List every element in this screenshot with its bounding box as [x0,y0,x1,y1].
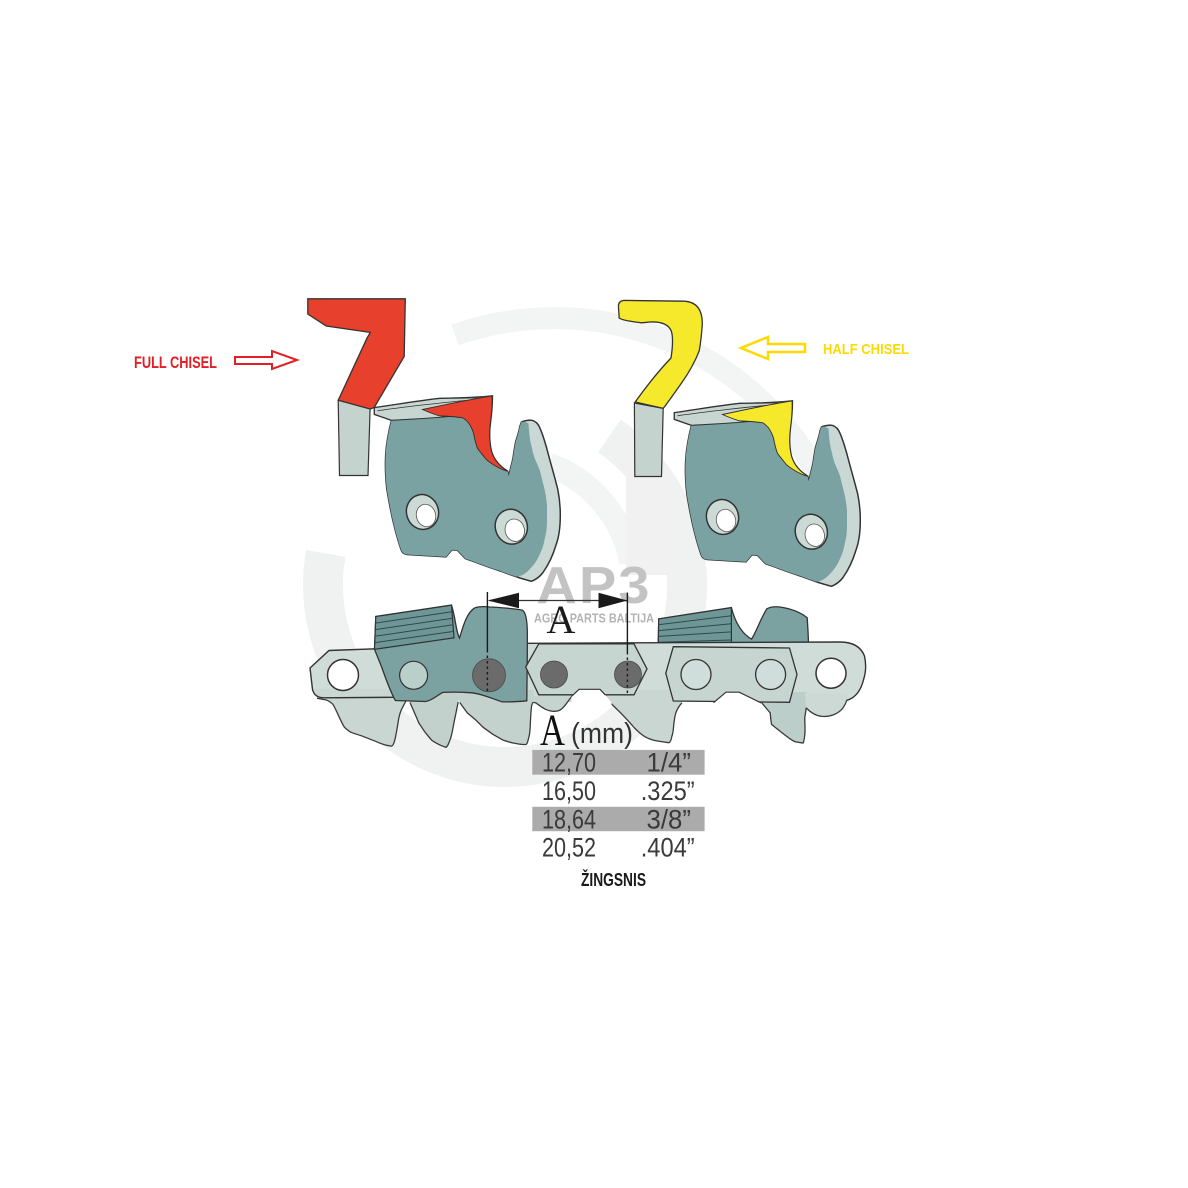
svg-text:.325”: .325” [641,776,695,806]
svg-text:12,70: 12,70 [542,748,596,778]
svg-text:1/4”: 1/4” [647,748,692,778]
svg-text:.404”: .404” [641,833,695,863]
svg-text:ŽINGSNIS: ŽINGSNIS [581,869,646,890]
svg-text:(mm): (mm) [571,718,633,750]
svg-text:18,64: 18,64 [542,805,596,835]
svg-text:3/8”: 3/8” [647,805,692,835]
svg-text:FULL CHISEL: FULL CHISEL [134,354,217,372]
svg-text:HALF CHISEL: HALF CHISEL [823,341,909,358]
svg-text:16,50: 16,50 [542,776,596,806]
svg-text:A: A [547,597,576,642]
svg-text:20,52: 20,52 [542,833,596,863]
